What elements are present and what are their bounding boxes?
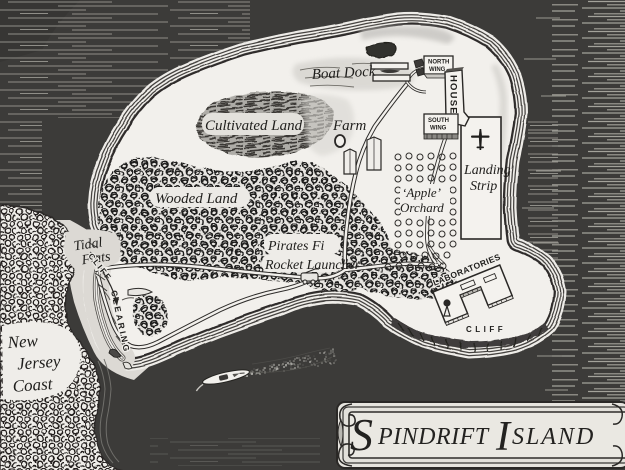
svg-text:PINDRIFT: PINDRIFT bbox=[377, 424, 490, 450]
svg-text:‘Apple’: ‘Apple’ bbox=[402, 185, 441, 200]
svg-text:Strip: Strip bbox=[470, 179, 497, 194]
svg-text:CLIFF: CLIFF bbox=[466, 325, 506, 334]
svg-text:SLAND: SLAND bbox=[512, 424, 595, 450]
svg-text:New: New bbox=[6, 331, 39, 352]
svg-text:Rocket Launcher: Rocket Launcher bbox=[264, 258, 361, 273]
svg-text:WING: WING bbox=[430, 126, 447, 132]
svg-text:WING: WING bbox=[429, 67, 446, 73]
svg-text:NORTH: NORTH bbox=[428, 60, 449, 66]
svg-text:Wooded Land: Wooded Land bbox=[155, 191, 238, 207]
svg-text:Boat Dock: Boat Dock bbox=[311, 64, 376, 83]
svg-text:SOUTH: SOUTH bbox=[428, 118, 449, 124]
svg-text:HOUSE: HOUSE bbox=[448, 75, 459, 115]
svg-text:Coast: Coast bbox=[12, 374, 54, 396]
svg-text:Jersey: Jersey bbox=[16, 352, 61, 374]
svg-text:Farm: Farm bbox=[332, 118, 367, 134]
svg-text:Landing: Landing bbox=[463, 163, 511, 178]
svg-text:I: I bbox=[495, 414, 512, 460]
svg-text:Pirates Fi: Pirates Fi bbox=[267, 239, 324, 254]
svg-text:Orchard: Orchard bbox=[400, 200, 444, 215]
svg-text:Cultivated Land: Cultivated Land bbox=[205, 118, 303, 134]
svg-text:S: S bbox=[350, 409, 373, 460]
